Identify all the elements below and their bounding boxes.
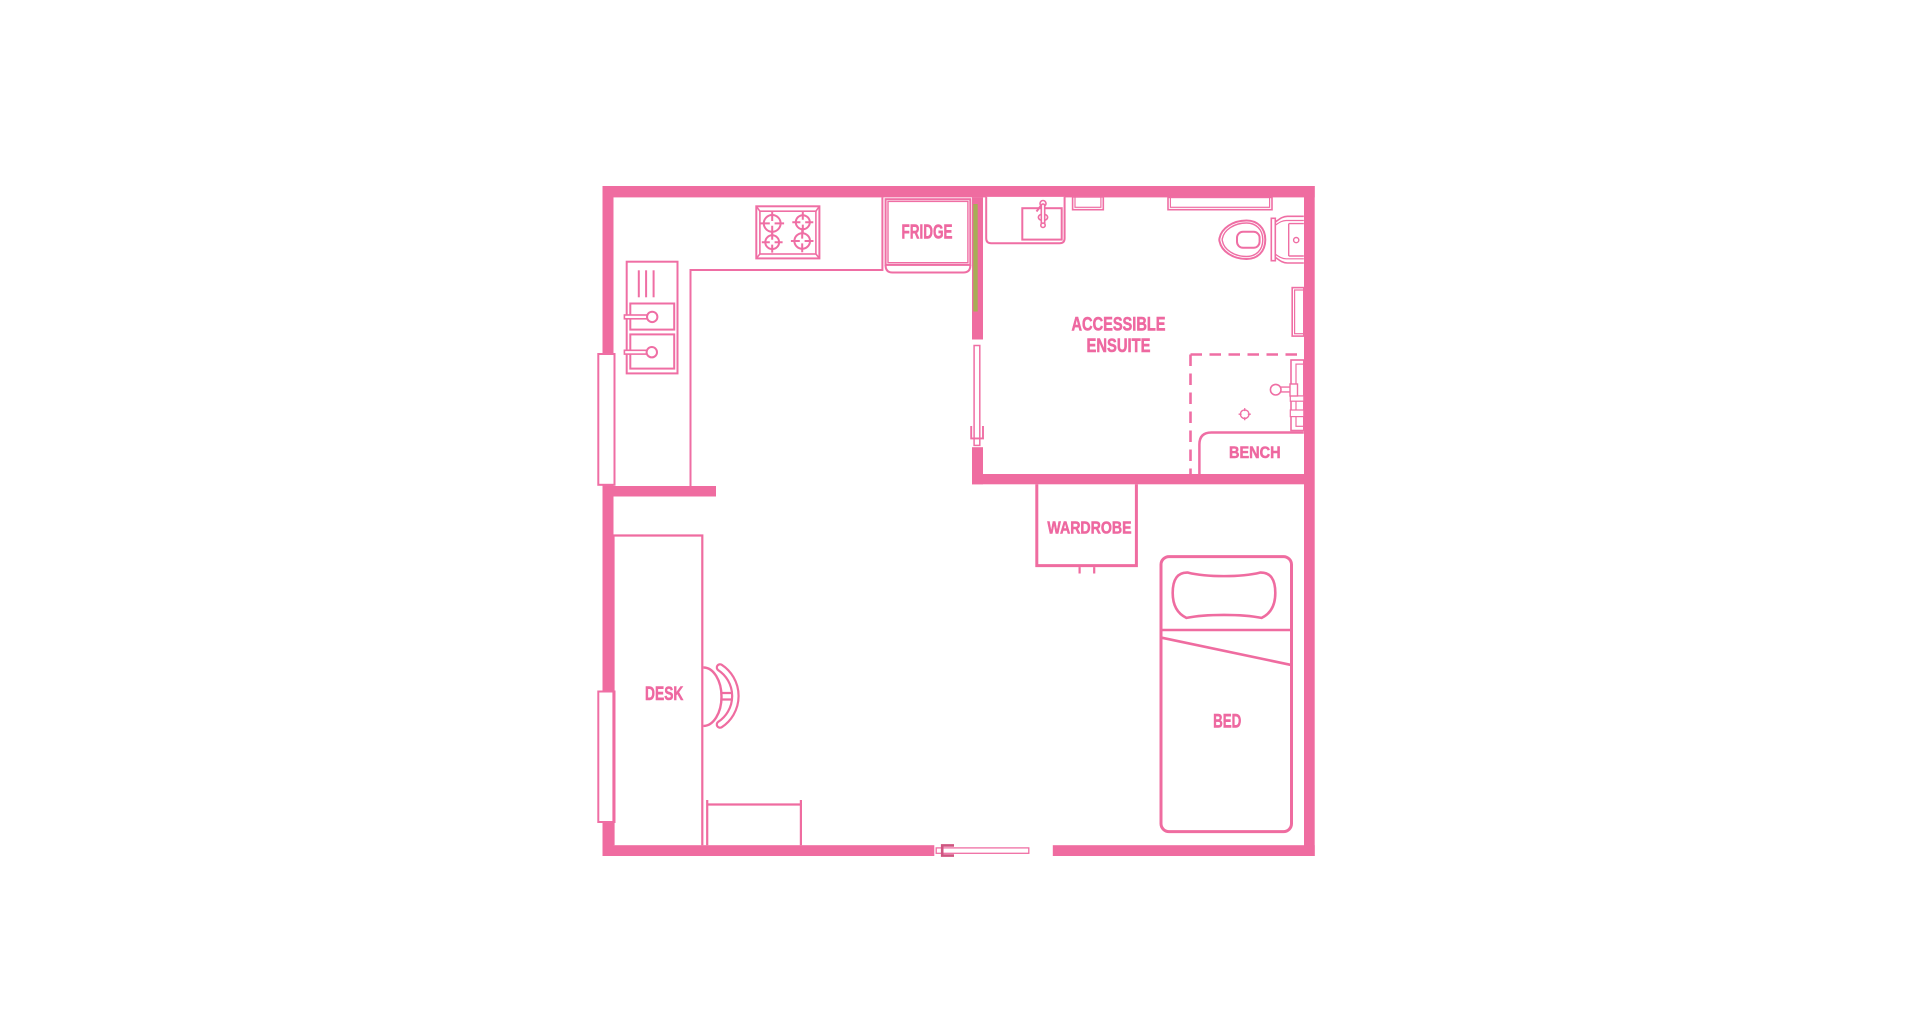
svg-text:FRIDGE: FRIDGE — [902, 221, 953, 244]
svg-text:WARDROBE: WARDROBE — [1047, 517, 1131, 537]
svg-text:ACCESSIBLE: ACCESSIBLE — [1072, 315, 1166, 336]
svg-text:BED: BED — [1213, 712, 1241, 733]
svg-text:DESK: DESK — [645, 684, 683, 705]
svg-text:BENCH: BENCH — [1229, 443, 1281, 462]
svg-text:ENSUITE: ENSUITE — [1087, 336, 1151, 357]
